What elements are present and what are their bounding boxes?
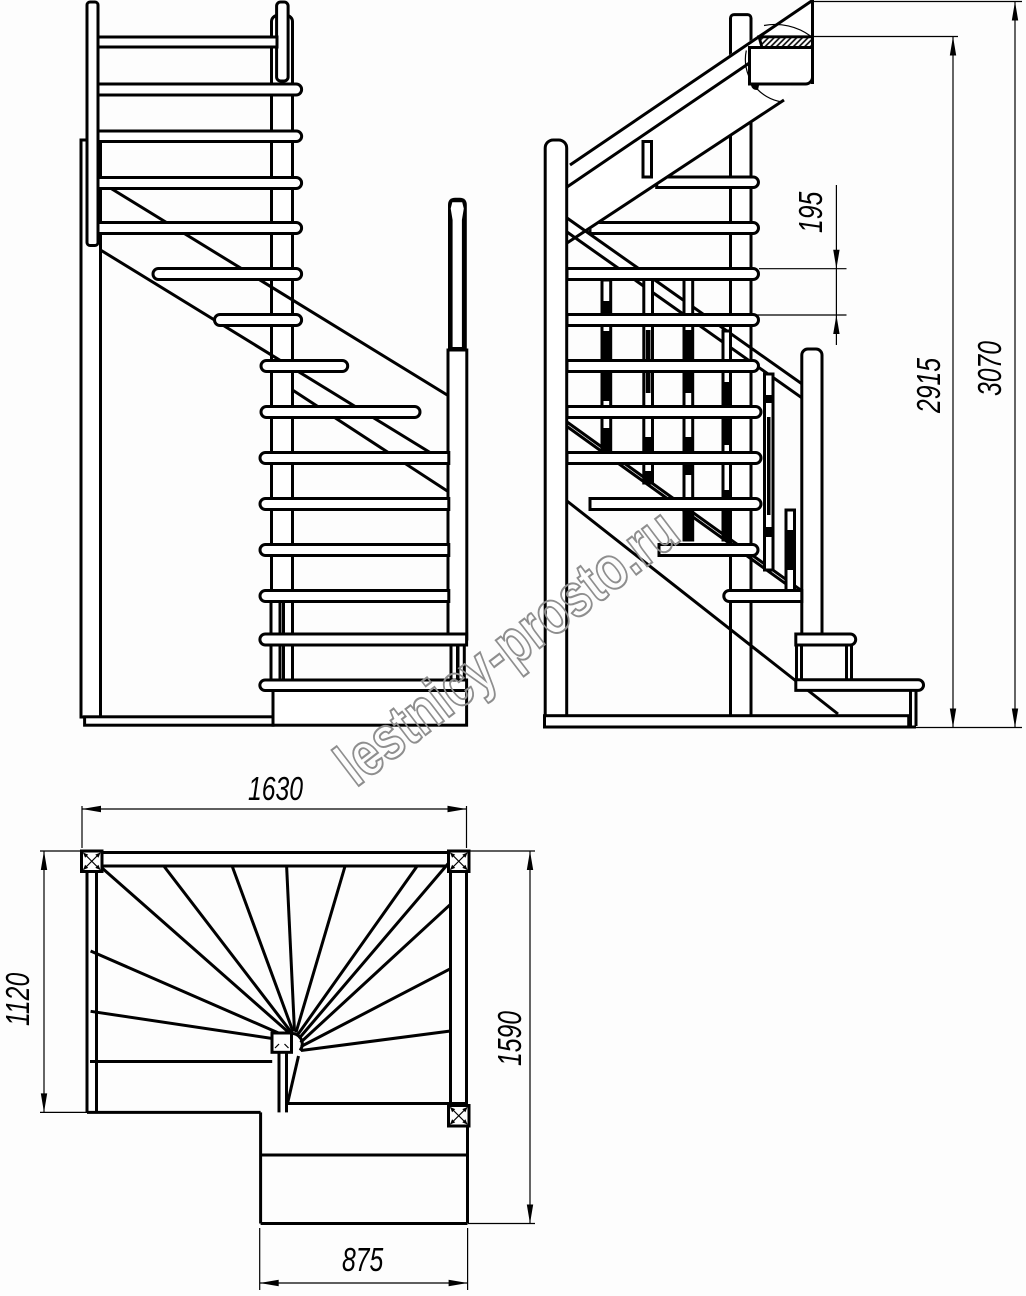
svg-text:1590: 1590 — [493, 1011, 529, 1066]
svg-text:195: 195 — [794, 191, 830, 233]
svg-text:1630: 1630 — [248, 772, 303, 808]
svg-text:2915: 2915 — [912, 357, 948, 414]
svg-text:1120: 1120 — [1, 973, 37, 1026]
svg-text:3070: 3070 — [973, 341, 1009, 396]
svg-text:875: 875 — [342, 1243, 384, 1279]
